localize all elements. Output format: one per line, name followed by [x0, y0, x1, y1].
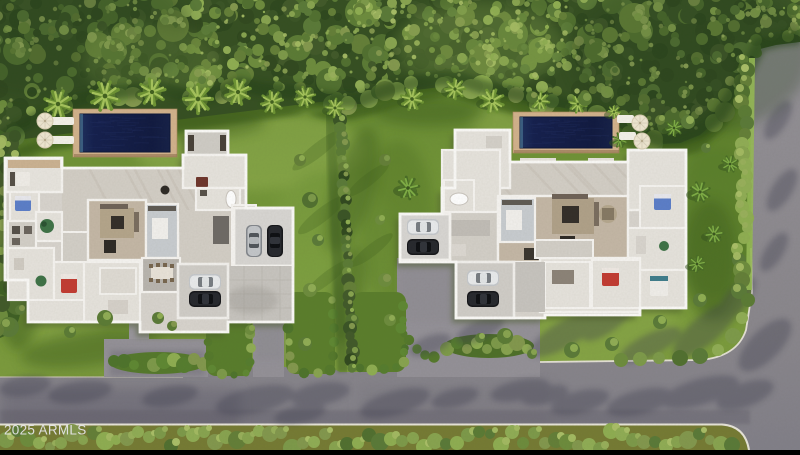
svg-text:2025 ARMLS: 2025 ARMLS: [4, 423, 87, 438]
